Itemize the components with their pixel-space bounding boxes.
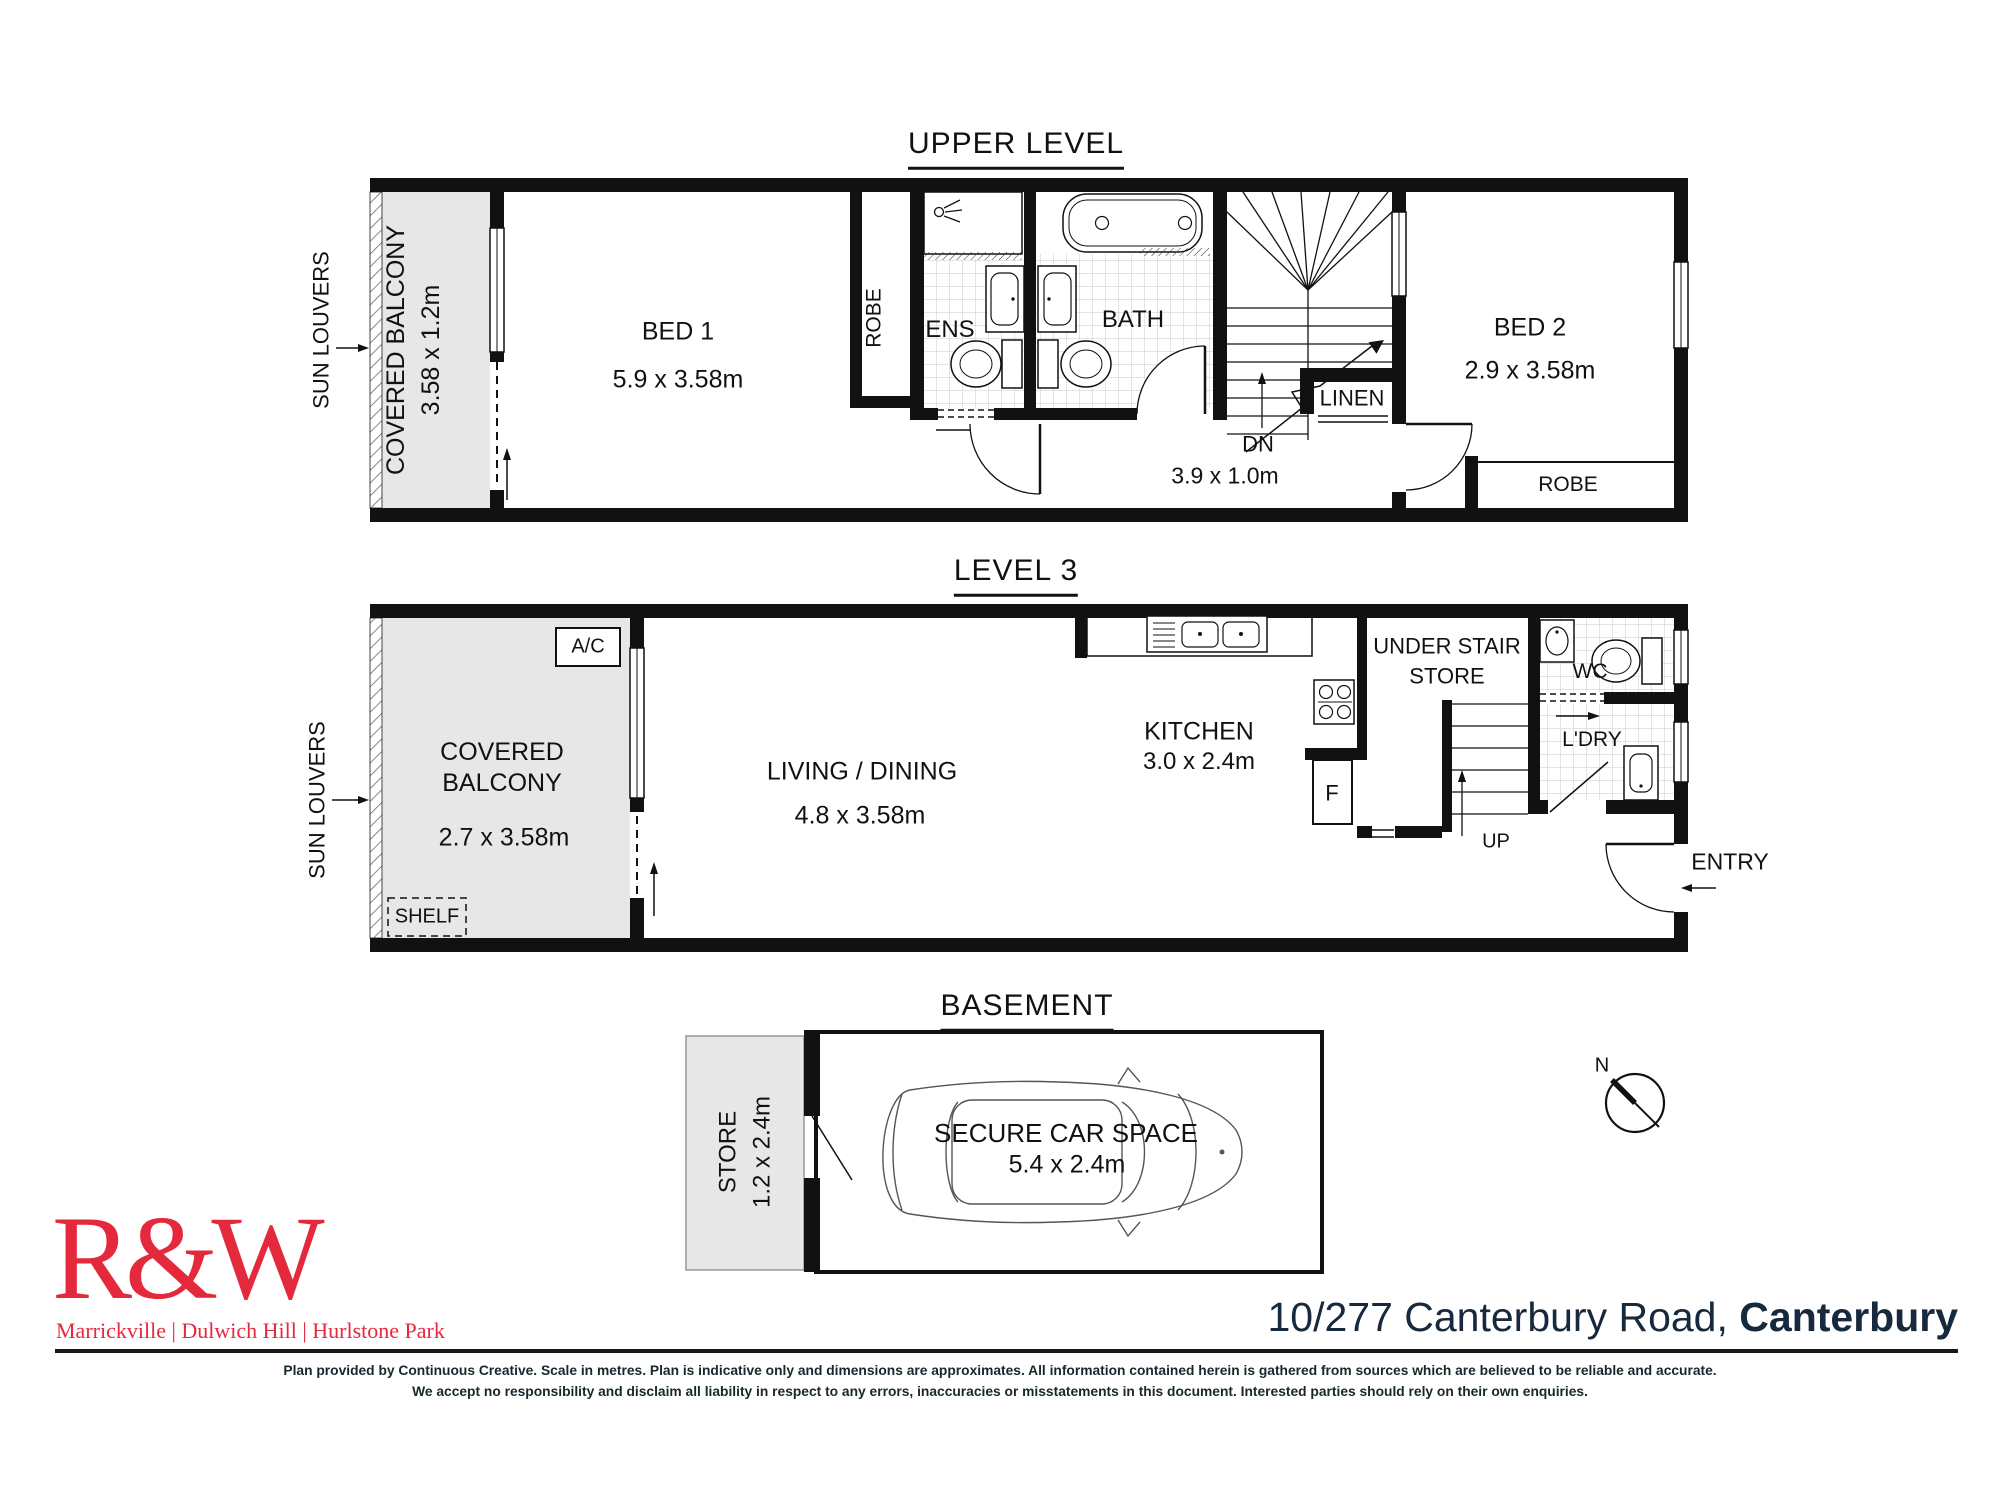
ens-label: ENS xyxy=(925,315,974,345)
ensuite xyxy=(910,192,1024,434)
store-label: STORE 1.2 x 2.4m xyxy=(711,1096,778,1208)
dn-label: DN xyxy=(1242,430,1274,458)
bathtub-icon xyxy=(1063,194,1202,252)
arrow-up-l3-balcony xyxy=(650,862,658,874)
upper-balcony-dim: 3.58 x 1.2m xyxy=(414,225,449,475)
ens-vanity-icon xyxy=(986,266,1024,332)
ens-cased-opening xyxy=(938,410,994,417)
window-bed2 xyxy=(1674,262,1688,348)
wc-slider-door xyxy=(1540,694,1604,701)
stairs-level3 xyxy=(1442,700,1528,836)
ldry-label: L'DRY xyxy=(1562,727,1622,753)
arrow-up-upper-balcony xyxy=(503,448,511,460)
entry-label: ENTRY xyxy=(1691,848,1769,877)
bed1-dim: 5.9 x 3.58m xyxy=(613,364,744,395)
stair-right-wall xyxy=(1392,192,1406,508)
arrow-entry xyxy=(1681,884,1692,892)
upper-level-plan xyxy=(336,178,1688,522)
kitchen-dim: 3.0 x 2.4m xyxy=(1143,747,1255,777)
bed2-dim: 2.9 x 3.58m xyxy=(1465,355,1596,386)
shower-screen xyxy=(924,252,1022,260)
bed2-door xyxy=(1406,424,1472,490)
arrow-sun-louvers-upper xyxy=(358,344,369,352)
fridge-label: F xyxy=(1325,779,1338,807)
ens-toilet-icon xyxy=(951,340,1022,388)
store-dim: 1.2 x 2.4m xyxy=(745,1096,779,1208)
car-space-dim: 5.4 x 2.4m xyxy=(1009,1149,1126,1180)
bath-label: BATH xyxy=(1102,305,1164,335)
ac-label: A/C xyxy=(571,635,604,660)
kitchen-label: KITCHEN xyxy=(1144,716,1254,747)
address-suburb: Canterbury xyxy=(1739,1294,1958,1340)
footer-rule xyxy=(55,1349,1958,1353)
property-address: 10/277 Canterbury Road, Canterbury xyxy=(1267,1294,1958,1341)
bed1-door xyxy=(970,424,1040,494)
floorplan-page: UPPER LEVEL LEVEL 3 BASEMENT SUN LOUVERS… xyxy=(0,0,2000,1500)
basement-plan xyxy=(686,1030,1664,1272)
window-ldry xyxy=(1674,722,1688,782)
agency-logo: R&W xyxy=(52,1198,318,1318)
living-dim: 4.8 x 3.58m xyxy=(795,800,926,831)
level3-title: LEVEL 3 xyxy=(954,552,1078,597)
l3-balcony-wall xyxy=(630,618,658,938)
bed2-label: BED 2 xyxy=(1494,312,1566,343)
living-label: LIVING / DINING xyxy=(767,756,957,787)
arrow-up-stairs-upper xyxy=(1258,372,1266,384)
l3-balcony-line1: COVERED xyxy=(440,737,564,768)
wc-sink-icon xyxy=(1540,620,1574,662)
address-main: 10/277 Canterbury Road, xyxy=(1267,1294,1739,1340)
entry-door xyxy=(1606,844,1674,912)
understair-line2: STORE xyxy=(1409,662,1484,690)
l3-balcony-line2: BALCONY xyxy=(440,768,564,799)
compass-n-label: N xyxy=(1595,1054,1609,1079)
bath-vanity-icon xyxy=(1038,266,1076,332)
sun-louvers-strip-l3 xyxy=(370,618,382,938)
shelf-label: SHELF xyxy=(395,905,459,930)
linen-label: LINEN xyxy=(1320,384,1385,412)
wc-label: WC xyxy=(1573,659,1608,685)
kitchen-sink-icon xyxy=(1147,616,1267,652)
ens-bath-wall xyxy=(1024,192,1036,420)
l3-balcony-label: COVERED BALCONY xyxy=(440,737,564,800)
disclaimer-line1: Plan provided by Continuous Creative. Sc… xyxy=(283,1363,1716,1378)
bath-toilet-icon xyxy=(1038,340,1111,388)
sun-louvers-label-l3: SUN LOUVERS xyxy=(303,721,334,879)
ldry-sink-icon xyxy=(1624,746,1658,800)
shower xyxy=(924,192,1022,254)
basement-title: BASEMENT xyxy=(940,987,1113,1032)
disclaimer-line2: We accept no responsibility and disclaim… xyxy=(412,1384,1588,1399)
arrow-sun-louvers-l3 xyxy=(358,796,369,804)
agency-tagline: Marrickville | Dulwich Hill | Hurlstone … xyxy=(56,1318,445,1344)
bath-screen xyxy=(1140,248,1210,256)
robe1-label: ROBE xyxy=(859,288,888,348)
laundry-room xyxy=(1528,704,1674,814)
sun-louvers-label-upper: SUN LOUVERS xyxy=(307,251,338,409)
bed1-label: BED 1 xyxy=(642,316,714,347)
cooktop-icon xyxy=(1314,680,1354,724)
understair-line1: UNDER STAIR xyxy=(1373,632,1521,660)
window-wc xyxy=(1674,630,1688,684)
up-label: UP xyxy=(1482,830,1510,855)
arrow-up-stairs-l3 xyxy=(1458,770,1466,782)
car-space-label: SECURE CAR SPACE xyxy=(934,1117,1198,1150)
hall-dim-label: 3.9 x 1.0m xyxy=(1171,462,1278,491)
store-name: STORE xyxy=(711,1096,745,1208)
l3-balcony-dim: 2.7 x 3.58m xyxy=(439,822,570,853)
upper-balcony-wall xyxy=(490,192,511,508)
upper-level-title: UPPER LEVEL xyxy=(908,125,1124,170)
robe2-label: ROBE xyxy=(1538,472,1598,498)
understair-store xyxy=(1357,826,1442,838)
compass-icon xyxy=(1606,1074,1664,1132)
upper-balcony-label: COVERED BALCONY 3.58 x 1.2m xyxy=(379,225,449,475)
upper-balcony-name: COVERED BALCONY xyxy=(379,225,414,475)
